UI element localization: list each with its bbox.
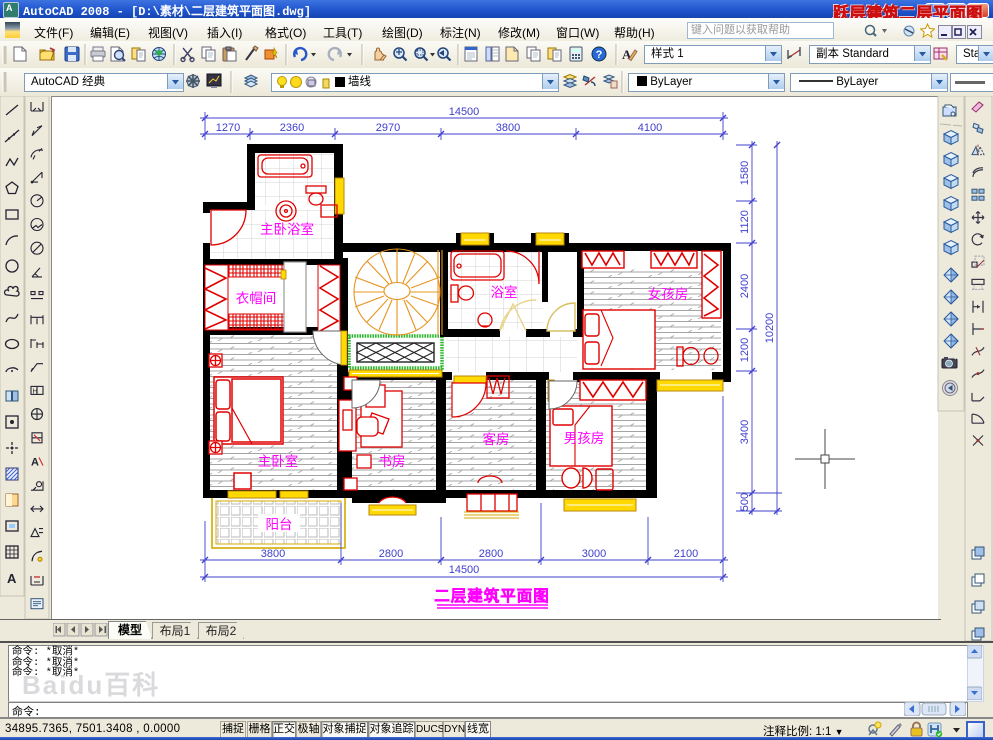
svg-text:1270: 1270 <box>216 122 240 134</box>
svg-text:二层建筑平面图: 二层建筑平面图 <box>434 586 550 605</box>
svg-text:主卧浴室: 主卧浴室 <box>260 221 314 237</box>
svg-text:14500: 14500 <box>449 564 480 576</box>
svg-text:4100: 4100 <box>638 122 662 134</box>
svg-text:10200: 10200 <box>764 313 776 344</box>
svg-text:2100: 2100 <box>674 548 698 560</box>
svg-text:2400: 2400 <box>739 274 751 298</box>
svg-text:H: H <box>33 388 38 395</box>
svg-text:A: A <box>7 571 17 586</box>
svg-text:?: ? <box>596 49 603 61</box>
svg-text:客房: 客房 <box>483 431 510 447</box>
svg-text:3000: 3000 <box>582 548 606 560</box>
svg-text:3800: 3800 <box>496 122 520 134</box>
svg-text:2360: 2360 <box>280 122 304 134</box>
svg-text:2970: 2970 <box>376 122 400 134</box>
svg-text:1580: 1580 <box>739 161 751 185</box>
svg-text:书房: 书房 <box>379 454 406 469</box>
svg-text:500: 500 <box>739 493 751 511</box>
svg-text:2800: 2800 <box>479 548 503 560</box>
svg-text:1200: 1200 <box>739 338 751 362</box>
svg-text:2800: 2800 <box>379 548 403 560</box>
svg-text:女孩房: 女孩房 <box>648 286 689 302</box>
svg-text:衣帽间: 衣帽间 <box>236 291 277 306</box>
svg-text:14500: 14500 <box>449 106 480 118</box>
svg-text:阳台: 阳台 <box>266 517 293 532</box>
svg-text:主卧室: 主卧室 <box>258 453 299 469</box>
svg-text:3800: 3800 <box>261 548 285 560</box>
svg-text:1120: 1120 <box>739 210 751 234</box>
svg-text:浴室: 浴室 <box>491 284 518 300</box>
svg-text:A: A <box>31 457 39 469</box>
svg-text:3400: 3400 <box>739 420 751 444</box>
svg-text:男孩房: 男孩房 <box>564 431 605 446</box>
